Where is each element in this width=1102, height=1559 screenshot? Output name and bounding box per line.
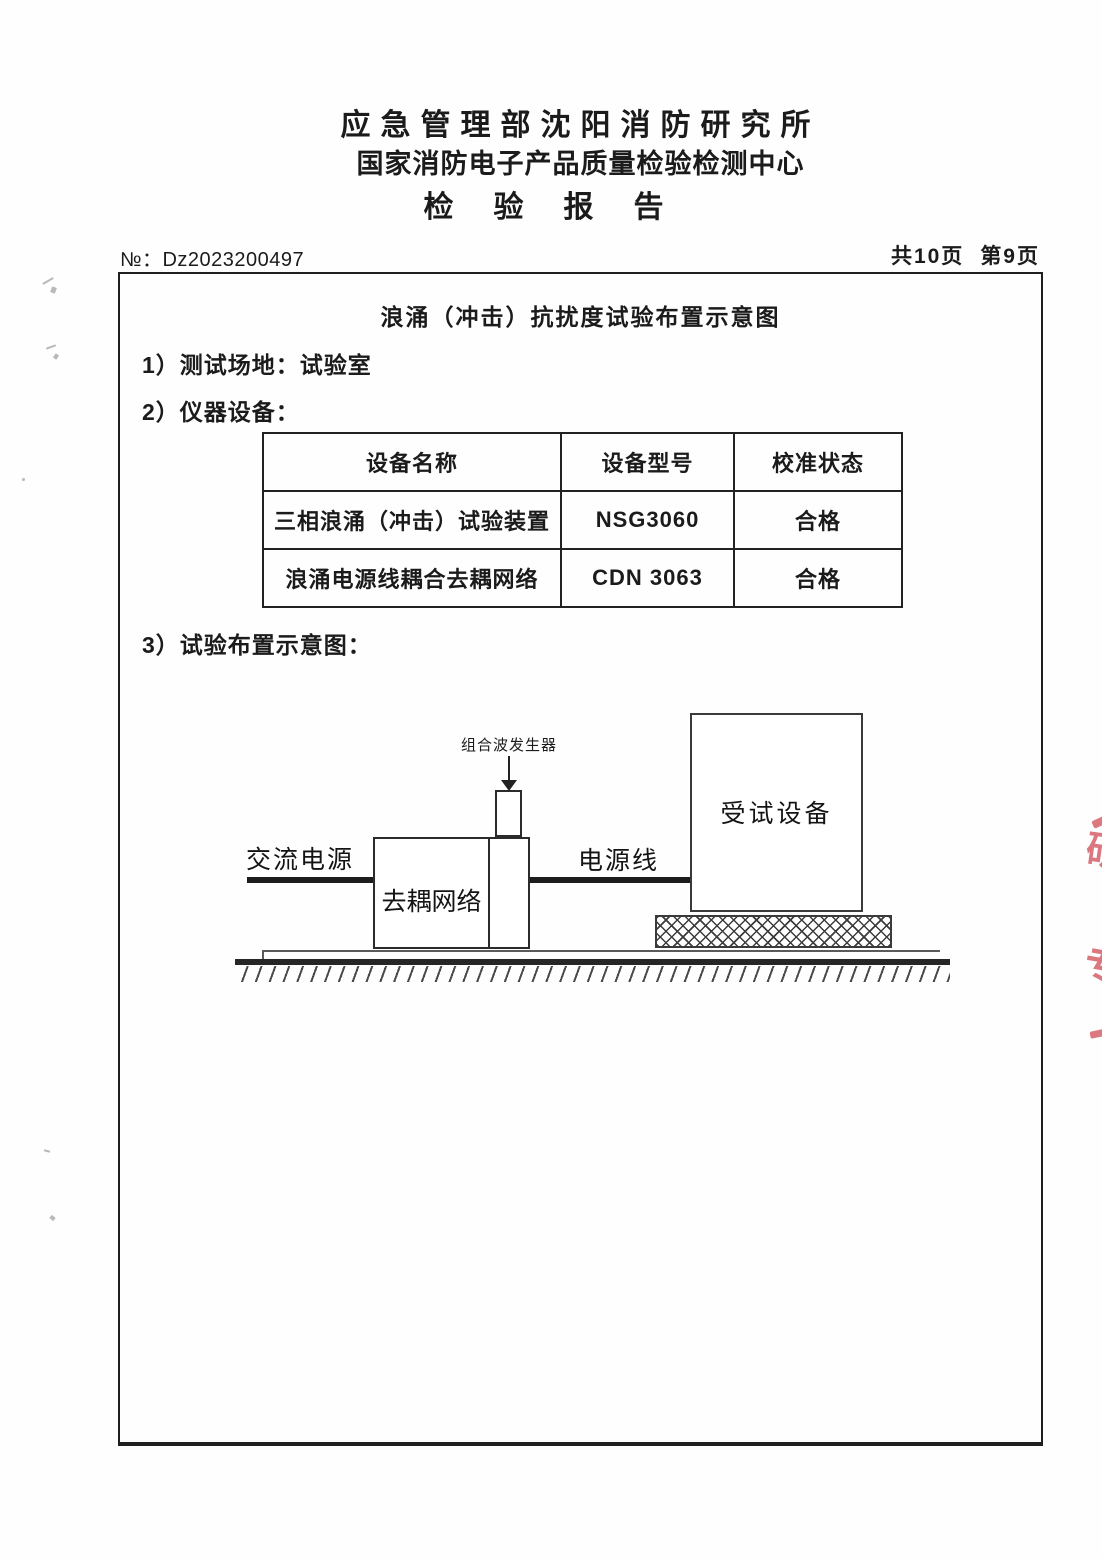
stamp-fragment-dash bbox=[1089, 1028, 1102, 1039]
item-equipment: 2）仪器设备： bbox=[142, 393, 300, 427]
item-test-site: 1）测试场地：试验室 bbox=[142, 346, 372, 380]
generator-label: 组合波发生器 bbox=[434, 734, 584, 755]
equipment-table-wrapper: 设备名称 设备型号 校准状态 三相浪涌（冲击）试验装置 NSG3060 合格 浪… bbox=[262, 432, 903, 608]
ground-plane-strip bbox=[262, 950, 940, 959]
page-indicator: 共10页第9页 bbox=[891, 240, 1040, 270]
current-page: 第9页 bbox=[980, 245, 1040, 268]
power-line-label: 电源线 bbox=[578, 841, 659, 877]
scan-speck bbox=[46, 344, 56, 349]
ac-power-line bbox=[247, 877, 373, 883]
scan-speck bbox=[44, 1149, 50, 1152]
generator-connector-box bbox=[495, 790, 522, 837]
cell-calibration-status: 合格 bbox=[734, 491, 902, 549]
document-number: №：Dz2023200497 bbox=[120, 243, 304, 272]
report-type-title: 检验报告 bbox=[118, 182, 1043, 226]
ac-power-label: 交流电源 bbox=[246, 840, 354, 876]
cell-device-name: 三相浪涌（冲击）试验装置 bbox=[263, 491, 561, 549]
table-row: 三相浪涌（冲击）试验装置 NSG3060 合格 bbox=[263, 491, 902, 549]
ground-reference-line bbox=[235, 959, 950, 965]
col-header-calibration-status: 校准状态 bbox=[734, 433, 902, 491]
scan-speck bbox=[42, 277, 53, 285]
eut-label: 受试设备 bbox=[690, 794, 863, 830]
cell-device-name: 浪涌电源线耦合去耦网络 bbox=[263, 549, 561, 607]
test-setup-diagram: 组合波发生器 去耦网络 交流电源 电源线 受试设备 bbox=[120, 698, 1041, 998]
item-layout-diagram: 3）试验布置示意图： bbox=[142, 626, 372, 660]
document-number-label: №： bbox=[120, 249, 162, 271]
cell-calibration-status: 合格 bbox=[734, 549, 902, 607]
cell-device-model: NSG3060 bbox=[561, 491, 734, 549]
institute-title: 应急管理部沈阳消防研究所 bbox=[118, 100, 1043, 144]
scan-speck bbox=[22, 478, 25, 481]
report-page: 应急管理部沈阳消防研究所 国家消防电子产品质量检验检测中心 检验报告 №：Dz2… bbox=[0, 0, 1102, 1559]
table-row: 浪涌电源线耦合去耦网络 CDN 3063 合格 bbox=[263, 549, 902, 607]
decoupling-network-label: 去耦网络 bbox=[373, 882, 490, 918]
scan-speck bbox=[50, 286, 57, 293]
stamp-fragment-dash bbox=[1091, 813, 1102, 829]
down-arrow-stem bbox=[508, 756, 510, 781]
report-content-frame: 浪涌（冲击）抗扰度试验布置示意图 1）测试场地：试验室 2）仪器设备： 设备名称… bbox=[118, 272, 1043, 1446]
power-line bbox=[530, 877, 690, 883]
col-header-device-model: 设备型号 bbox=[561, 433, 734, 491]
stamp-fragment-char: 研 bbox=[1084, 831, 1102, 874]
total-pages: 共10页 bbox=[891, 245, 964, 268]
insulating-support-block bbox=[655, 915, 892, 948]
document-number-value: Dz2023200497 bbox=[162, 249, 304, 271]
stamp-fragment-curve: （ bbox=[1069, 886, 1102, 952]
section-title: 浪涌（冲击）抗扰度试验布置示意图 bbox=[120, 298, 1041, 332]
scan-speck bbox=[49, 1215, 55, 1221]
center-title: 国家消防电子产品质量检验检测中心 bbox=[118, 142, 1043, 181]
scan-speck bbox=[53, 353, 59, 359]
col-header-device-name: 设备名称 bbox=[263, 433, 561, 491]
equipment-table: 设备名称 设备型号 校准状态 三相浪涌（冲击）试验装置 NSG3060 合格 浪… bbox=[262, 432, 903, 608]
cell-device-model: CDN 3063 bbox=[561, 549, 734, 607]
ground-hatching bbox=[235, 966, 950, 982]
stamp-fragment-char: 专 bbox=[1081, 945, 1102, 994]
table-header-row: 设备名称 设备型号 校准状态 bbox=[263, 433, 902, 491]
